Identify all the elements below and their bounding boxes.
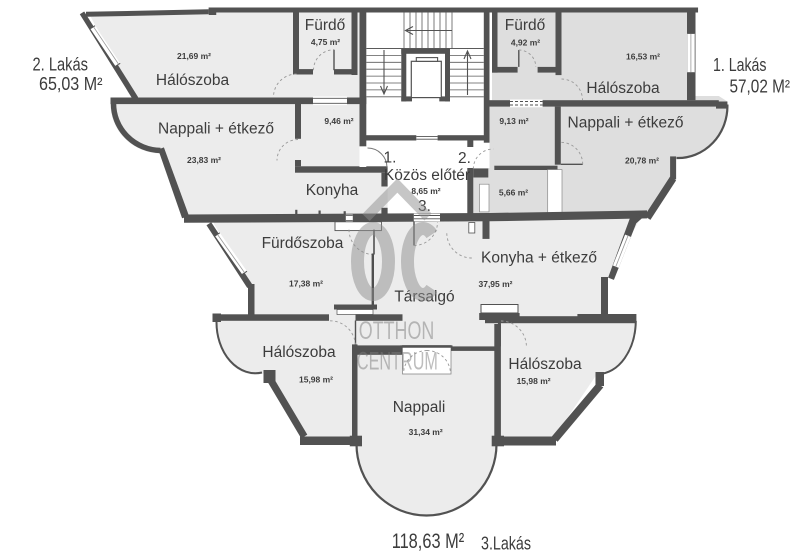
svg-text:Nappali + étkező: Nappali + étkező: [568, 115, 684, 132]
svg-text:2. Lakás: 2. Lakás: [33, 55, 89, 75]
svg-text:57,02 M²: 57,02 M²: [730, 77, 791, 97]
svg-text:Hálószoba: Hálószoba: [156, 72, 230, 89]
svg-text:20,78 m²: 20,78 m²: [625, 156, 659, 166]
svg-text:3.Lakás: 3.Lakás: [481, 534, 531, 554]
svg-text:15,98 m²: 15,98 m²: [517, 376, 551, 386]
svg-text:Nappali: Nappali: [393, 399, 446, 416]
svg-text:5,66 m²: 5,66 m²: [499, 188, 528, 198]
svg-text:Fürdő: Fürdő: [505, 17, 546, 34]
svg-text:15,98 m²: 15,98 m²: [299, 375, 333, 385]
svg-text:2.: 2.: [458, 150, 471, 167]
svg-text:31,34 m²: 31,34 m²: [409, 427, 443, 437]
svg-text:Nappali + étkező: Nappali + étkező: [158, 121, 274, 138]
svg-text:118,63 M²: 118,63 M²: [392, 529, 465, 553]
svg-text:16,53 m²: 16,53 m²: [626, 52, 660, 62]
svg-text:Hálószoba: Hálószoba: [508, 356, 582, 373]
svg-text:21,69 m²: 21,69 m²: [177, 51, 211, 61]
svg-text:9,46 m²: 9,46 m²: [324, 116, 353, 126]
svg-text:4,75 m²: 4,75 m²: [311, 37, 340, 47]
svg-text:CENTRUM: CENTRUM: [357, 348, 438, 376]
svg-text:OTTHON: OTTHON: [359, 317, 435, 345]
svg-text:Hálószoba: Hálószoba: [262, 344, 336, 361]
svg-text:9,13 m²: 9,13 m²: [499, 116, 528, 126]
svg-text:65,03 M²: 65,03 M²: [39, 74, 103, 94]
svg-text:37,95 m²: 37,95 m²: [478, 279, 512, 289]
svg-text:Konyha: Konyha: [306, 182, 359, 199]
svg-text:1.: 1.: [384, 150, 397, 167]
svg-text:Fürdő: Fürdő: [305, 17, 346, 34]
svg-text:1. Lakás: 1. Lakás: [713, 55, 767, 75]
svg-text:8,65 m²: 8,65 m²: [411, 186, 440, 196]
svg-text:Konyha + étkező: Konyha + étkező: [481, 250, 597, 267]
svg-text:23,83 m²: 23,83 m²: [187, 155, 221, 165]
svg-text:Hálószoba: Hálószoba: [586, 80, 660, 97]
svg-text:4,92 m²: 4,92 m²: [511, 38, 540, 48]
svg-text:Fürdőszoba: Fürdőszoba: [262, 235, 344, 252]
svg-text:17,38 m²: 17,38 m²: [289, 279, 323, 289]
